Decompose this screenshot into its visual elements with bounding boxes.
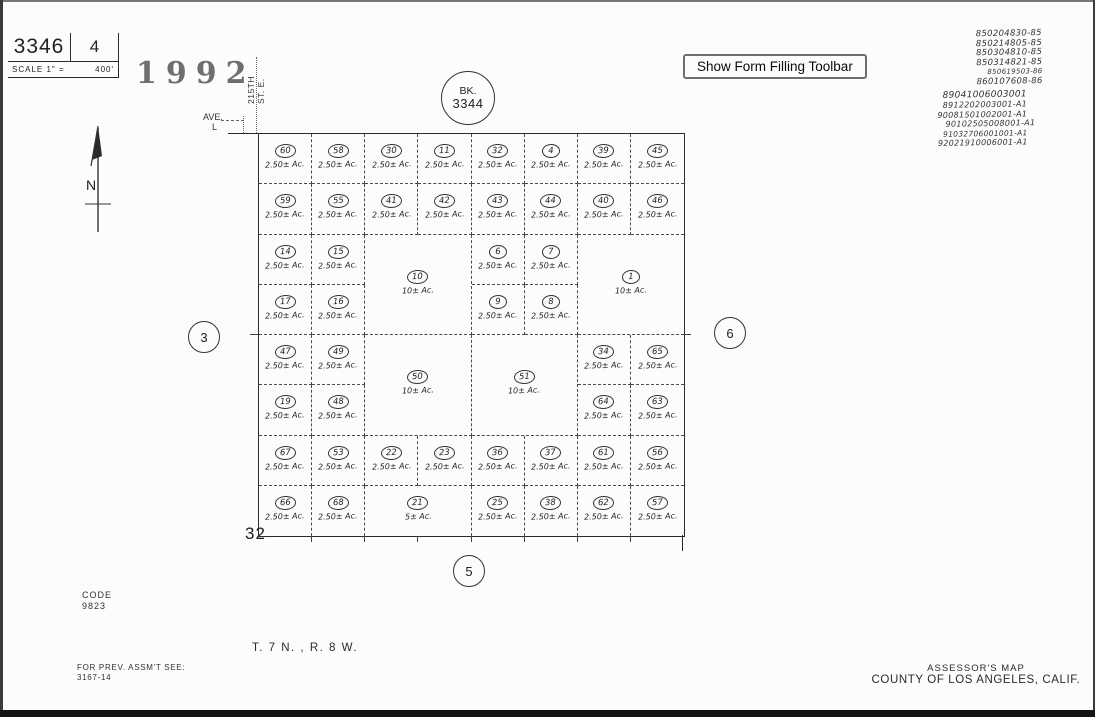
street-line1: 215TH [246,52,256,104]
parcel-acreage: 2.50± Ac. [265,360,305,370]
parcel-acreage: 2.50± Ac. [425,159,465,169]
parcel-acreage: 2.50± Ac. [478,260,518,270]
parcel-37: 372.50± Ac. [525,436,578,486]
parcel-number: 14 [274,244,296,259]
parcel-63: 632.50± Ac. [631,385,684,435]
parcel-acreage: 2.50± Ac. [584,159,624,169]
parcel-number: 55 [327,194,349,209]
parcel-number: 68 [327,496,349,511]
avenue-letter: L [212,122,223,132]
parcel-acreage: 5± Ac. [404,512,431,522]
grid-tick [630,536,631,542]
parcel-number: 7 [541,244,560,259]
avenue-name: AVE. [203,112,223,122]
parcel-number: 65 [647,345,669,360]
parcel-11: 112.50± Ac. [418,134,471,184]
parcel-acreage: 2.50± Ac. [531,310,571,320]
parcel-57: 572.50± Ac. [631,486,684,536]
parcel-16: 162.50± Ac. [312,285,365,335]
parcel-number: 6 [488,244,507,259]
parcel-number: 43 [487,194,509,209]
parcel-59: 592.50± Ac. [259,184,312,234]
parcel-number: 44 [540,194,562,209]
prev-assessment-block: FOR PREV. ASSM'T SEE: 3167-14 [77,663,185,683]
parcel-number: 39 [593,144,615,159]
parcel-39: 392.50± Ac. [578,134,631,184]
parcel-acreage: 2.50± Ac. [478,512,518,522]
parcel-40: 402.50± Ac. [578,184,631,234]
parcel-acreage: 2.50± Ac. [371,461,411,471]
parcel-number: 47 [274,345,296,360]
parcel-65: 652.50± Ac. [631,335,684,385]
adjacent-page-right: 6 [714,317,746,349]
parcel-22: 222.50± Ac. [365,436,418,486]
parcel-number: 8 [541,294,560,309]
parcel-number: 50 [407,370,429,385]
parcel-58: 582.50± Ac. [312,134,365,184]
parcel-60: 602.50± Ac. [259,134,312,184]
parcel-number: 10 [407,269,429,284]
parcel-number: 21 [407,496,429,511]
parcel-acreage: 2.50± Ac. [425,210,465,220]
parcel-61: 612.50± Ac. [578,436,631,486]
parcel-67: 672.50± Ac. [259,436,312,486]
parcel-number: 59 [274,194,296,209]
parcel-4: 42.50± Ac. [525,134,578,184]
code-value: 9823 [82,601,112,612]
grid-tick [364,536,365,542]
parcel-number: 9 [488,294,507,309]
parcel-number: 22 [381,445,403,460]
prev-assessment-label: FOR PREV. ASSM'T SEE: [77,663,185,673]
parcel-acreage: 2.50± Ac. [318,411,358,421]
grid-tick [683,334,691,335]
parcel-acreage: 2.50± Ac. [318,360,358,370]
parcel-acreage: 2.50± Ac. [318,512,358,522]
parcel-acreage: 2.50± Ac. [478,310,518,320]
parcel-acreage: 10± Ac. [402,285,434,295]
parcel-43: 432.50± Ac. [472,184,525,234]
parcel-acreage: 2.50± Ac. [265,512,305,522]
parcel-acreage: 2.50± Ac. [531,260,571,270]
parcel-64: 642.50± Ac. [578,385,631,435]
book-number: 3344 [453,97,484,111]
parcel-42: 422.50± Ac. [418,184,471,234]
parcel-acreage: 10± Ac. [615,285,647,295]
parcel-14: 142.50± Ac. [259,235,312,285]
parcel-acreage: 2.50± Ac. [265,310,305,320]
parcel-number: 45 [647,144,669,159]
parcel-number: 17 [274,294,296,309]
parcel-acreage: 2.50± Ac. [584,360,624,370]
assessor-title-line2: COUNTY OF LOS ANGELES, CALIF. [862,674,1090,687]
grid-tick [417,536,418,542]
scale-label: SCALE 1" = [12,62,65,77]
parcel-number: 46 [647,194,669,209]
page-border-left [0,0,3,710]
parcel-7: 72.50± Ac. [525,235,578,285]
parcel-acreage: 2.50± Ac. [265,210,305,220]
parcel-number: 38 [540,496,562,511]
parcel-44: 442.50± Ac. [525,184,578,234]
parcel-56: 562.50± Ac. [631,436,684,486]
parcel-acreage: 10± Ac. [508,386,540,396]
parcel-number: 25 [487,496,509,511]
parcel-number: 37 [540,445,562,460]
parcel-25: 252.50± Ac. [472,486,525,536]
parcel-number: 36 [487,445,509,460]
parcel-number: 66 [274,496,296,511]
parcel-acreage: 2.50± Ac. [531,159,571,169]
parcel-acreage: 2.50± Ac. [584,411,624,421]
parcel-number: 60 [274,144,296,159]
grid-tick [250,334,258,335]
avenue-label: AVE. L [203,112,223,132]
parcel-number: 4 [541,144,560,159]
avenue-dashed-line [221,120,244,121]
sheet-info-box: 3346 4 SCALE 1" = 400' [8,33,119,78]
parcel-51: 5110± Ac. [472,335,578,436]
parcel-50: 5010± Ac. [365,335,471,436]
parcel-number: 53 [327,445,349,460]
street-line2: ST. E. [256,52,266,104]
parcel-acreage: 2.50± Ac. [318,310,358,320]
code-label: CODE [82,590,112,601]
parcel-53: 532.50± Ac. [312,436,365,486]
parcel-acreage: 2.50± Ac. [318,210,358,220]
street-dotted-line [243,116,244,133]
parcel-acreage: 2.50± Ac. [318,260,358,270]
scale-value: 400' [95,62,114,77]
parcel-45: 452.50± Ac. [631,134,684,184]
parcel-19: 192.50± Ac. [259,385,312,435]
parcel-62: 622.50± Ac. [578,486,631,536]
parcel-acreage: 2.50± Ac. [638,512,678,522]
recording-number: 850619503-86 [988,67,1043,76]
assessor-map-page: 3346 4 SCALE 1" = 400' 1992 215TH ST. E.… [0,0,1095,717]
parcel-68: 682.50± Ac. [312,486,365,536]
grid-topline-extension [228,133,259,134]
parcel-acreage: 2.50± Ac. [371,159,411,169]
parcel-acreage: 2.50± Ac. [265,260,305,270]
parcel-number: 34 [593,345,615,360]
adjacent-page-bottom: 5 [453,555,485,587]
north-letter: N [86,177,96,193]
parcel-number: 51 [513,370,535,385]
parcel-number: 11 [434,144,456,159]
year-stamp: 1992 [136,56,256,91]
parcel-grid: 602.50± Ac.582.50± Ac.302.50± Ac.112.50±… [258,133,685,537]
parcel-number: 40 [593,194,615,209]
grid-tick [471,536,472,542]
parcel-66: 662.50± Ac. [259,486,312,536]
parcel-acreage: 2.50± Ac. [425,461,465,471]
parcel-acreage: 2.50± Ac. [265,159,305,169]
parcel-acreage: 2.50± Ac. [478,159,518,169]
parcel-48: 482.50± Ac. [312,385,365,435]
parcel-38: 382.50± Ac. [525,486,578,536]
sheet-page-number: 4 [70,33,118,61]
parcel-number: 48 [327,395,349,410]
grid-tick [524,536,525,542]
recording-numbers-block: 850204830-85850214805-85850304810-858503… [936,29,1044,148]
street-label-215th: 215TH ST. E. [246,52,268,104]
parcel-number: 61 [593,445,615,460]
parcel-30: 302.50± Ac. [365,134,418,184]
parcel-acreage: 2.50± Ac. [584,461,624,471]
parcel-21: 215± Ac. [365,486,471,536]
parcel-number: 41 [381,194,403,209]
prev-assessment-value: 3167-14 [77,673,185,683]
parcel-49: 492.50± Ac. [312,335,365,385]
parcel-number: 62 [593,496,615,511]
township-range: T. 7 N. , R. 8 W. [252,642,358,654]
parcel-number: 49 [327,345,349,360]
book-number-circle: BK. 3344 [441,71,495,125]
parcel-10: 1010± Ac. [365,235,471,336]
parcel-number: 19 [274,395,296,410]
parcel-number: 56 [647,445,669,460]
parcel-number: 30 [381,144,403,159]
parcel-acreage: 2.50± Ac. [638,411,678,421]
grid-tick [311,536,312,542]
grid-rightline-extension [682,535,683,551]
parcel-number: 64 [593,395,615,410]
parcel-acreage: 2.50± Ac. [371,210,411,220]
show-form-filling-toolbar-button[interactable]: Show Form Filling Toolbar [683,54,867,79]
street-dotted-line [256,57,257,133]
parcel-number: 63 [647,395,669,410]
parcel-number: 57 [647,496,669,511]
parcel-acreage: 10± Ac. [402,386,434,396]
parcel-15: 152.50± Ac. [312,235,365,285]
book-prefix: BK. [460,86,477,97]
page-border-bottom [0,710,1095,717]
page-border-top [0,0,1095,2]
parcel-acreage: 2.50± Ac. [478,210,518,220]
parcel-6: 62.50± Ac. [472,235,525,285]
parcel-acreage: 2.50± Ac. [638,210,678,220]
parcel-number: 67 [274,445,296,460]
parcel-number: 42 [434,194,456,209]
parcel-acreage: 2.50± Ac. [638,159,678,169]
map-book-number: 3346 [8,33,70,61]
recording-number: 92021910006001-A1 [938,137,1028,148]
parcel-46: 462.50± Ac. [631,184,684,234]
adjacent-page-left: 3 [188,321,220,353]
parcel-32: 322.50± Ac. [472,134,525,184]
parcel-55: 552.50± Ac. [312,184,365,234]
parcel-acreage: 2.50± Ac. [531,461,571,471]
parcel-23: 232.50± Ac. [418,436,471,486]
parcel-41: 412.50± Ac. [365,184,418,234]
parcel-34: 342.50± Ac. [578,335,631,385]
parcel-acreage: 2.50± Ac. [531,512,571,522]
parcel-8: 82.50± Ac. [525,285,578,335]
recording-number: 860107608-86 [977,77,1043,88]
parcel-acreage: 2.50± Ac. [318,461,358,471]
parcel-acreage: 2.50± Ac. [638,360,678,370]
parcel-acreage: 2.50± Ac. [478,461,518,471]
parcel-number: 23 [434,445,456,460]
parcel-17: 172.50± Ac. [259,285,312,335]
parcel-number: 32 [487,144,509,159]
assessor-title-line1: ASSESSOR'S MAP [862,663,1090,674]
parcel-acreage: 2.50± Ac. [638,461,678,471]
parcel-number: 16 [327,294,349,309]
parcel-number: 58 [327,144,349,159]
parcel-acreage: 2.50± Ac. [265,411,305,421]
assessor-map-title: ASSESSOR'S MAP COUNTY OF LOS ANGELES, CA… [862,663,1090,687]
tax-code-block: CODE 9823 [82,590,112,611]
parcel-acreage: 2.50± Ac. [584,210,624,220]
parcel-number: 15 [327,244,349,259]
parcel-acreage: 2.50± Ac. [584,512,624,522]
parcel-acreage: 2.50± Ac. [318,159,358,169]
parcel-number: 1 [622,269,641,284]
grid-tick [577,536,578,542]
parcel-9: 92.50± Ac. [472,285,525,335]
parcel-acreage: 2.50± Ac. [265,461,305,471]
parcel-1: 110± Ac. [578,235,684,336]
parcel-47: 472.50± Ac. [259,335,312,385]
section-number: 32 [245,524,266,544]
parcel-36: 362.50± Ac. [472,436,525,486]
parcel-acreage: 2.50± Ac. [531,210,571,220]
north-arrow-icon: N [78,120,122,238]
